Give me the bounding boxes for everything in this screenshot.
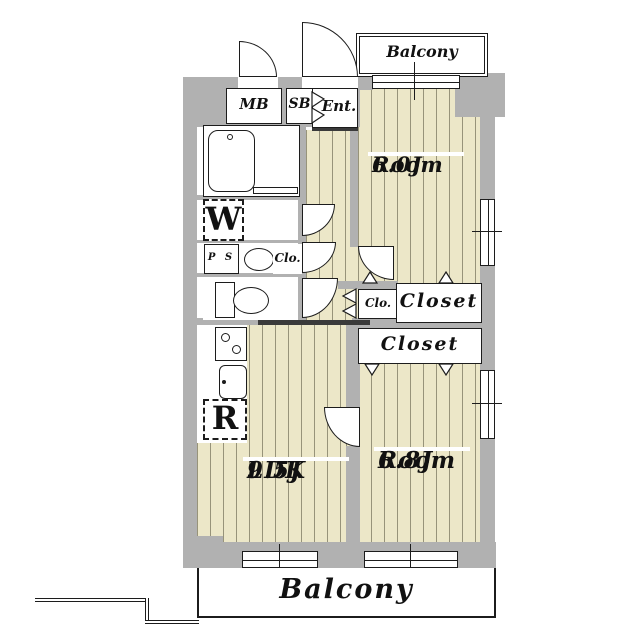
balcony-top: Balcony [356,33,488,77]
wall-right [480,115,495,542]
toilet-bowl [233,287,269,314]
closet-door-marker-icon [364,363,380,376]
room-6-0j-size: 6.0J [372,154,422,175]
window-top [372,75,460,89]
balcony-top-label: Balcony [357,44,487,60]
stove [215,327,247,361]
neighbor-balcony-line-2 [145,620,199,624]
toilet-tank [215,282,235,318]
hall-ldk-step [258,320,370,325]
pipe-space-label: P S [205,253,238,263]
room1-closet: Closet [396,283,482,323]
meter-box-label: MB [227,97,281,112]
window-room2-right [480,370,495,439]
neighbor-balcony-line [35,598,148,602]
wall-top-right-block [455,73,505,117]
floor-plan: Balcony MB SB Ent. W P S Clo. [0,0,640,640]
window-pane-line [365,560,457,561]
hall-closet-label: Clo. [359,297,397,309]
room-6-8j-size: 6.8J [378,449,433,472]
entrance-label: Ent. [321,99,357,114]
window-pane-line [243,560,317,561]
window-pane-line [373,82,459,83]
window-pane-line [488,371,489,438]
shoe-box-label: SB [287,97,312,111]
window-room1-tick [472,231,502,232]
wash-closet: Clo. [273,244,302,274]
room-6-8j-label: Room 6.8J [374,447,470,451]
window-ldk-bottom [242,551,318,568]
stove-burner-2 [232,345,241,354]
hall-closet-bifold-door-icon [341,288,357,320]
window-room2-bottom [364,551,458,568]
wall-left [183,77,197,542]
entrance-door-arc [302,22,358,77]
room1-closet-label: Closet [397,292,481,311]
washbasin [244,248,274,271]
balcony-bottom-label: Balcony [198,576,495,604]
sink-tap [222,380,226,384]
fridge-space: R [203,399,247,440]
closet-door-marker-icon [362,271,378,284]
wash-closet-label: Clo. [273,252,302,264]
shoe-box: SB [286,88,313,124]
washer-label: W [205,203,242,236]
room-6-0j-label: Room 6.0J [368,152,464,156]
meter-box-door-arc [239,41,277,77]
wall-hall-room1 [350,127,358,247]
window-top-tick [414,62,415,100]
meter-box: MB [226,88,282,124]
washer-space: W [203,199,244,241]
window-pane-line [488,200,489,265]
shoe-box-bifold-door-icon [311,91,325,125]
closet-door-marker-icon [438,271,454,284]
bathtub-drain [227,134,233,140]
room2-closet: Closet [358,328,482,364]
window-room2-tick [472,403,502,404]
fridge-label: R [205,402,245,435]
room2-closet-label: Closet [359,335,481,354]
window-room1-right [480,199,495,266]
bathroom-counter [253,187,298,194]
closet-door-marker-icon [438,363,454,376]
stove-burner-1 [221,333,230,342]
ldk-size: 9.5J [247,459,302,482]
ldk-label: LDK 9.5J [243,457,349,461]
pipe-space: P S [204,244,239,274]
balcony-bottom: Balcony [197,568,496,618]
hall-closet: Clo. [358,289,398,319]
